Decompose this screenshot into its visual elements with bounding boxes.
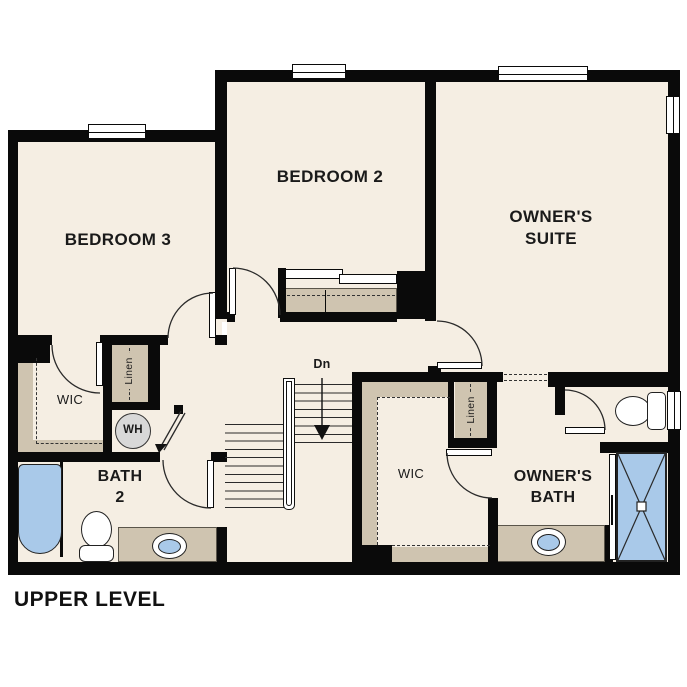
wall — [325, 290, 326, 314]
wall — [487, 375, 497, 443]
cased-opening-dash — [504, 380, 547, 381]
window — [666, 96, 680, 134]
window — [292, 64, 346, 79]
floor-plan: BEDROOM 3 BEDROOM 2 OWNER'S SUITE OWNER'… — [0, 0, 687, 687]
stairs-railing-inner — [286, 381, 292, 506]
stairs-upper-flight — [287, 384, 352, 446]
water-heater-label: WH — [103, 424, 163, 436]
bedroom2-label: BEDROOM 2 — [250, 166, 410, 188]
page-title: UPPER LEVEL — [14, 588, 165, 612]
owners-toilet-tank — [647, 392, 666, 430]
wall — [668, 70, 680, 575]
window — [667, 391, 681, 430]
wall — [548, 372, 668, 387]
bedroom2-door-leaf — [229, 268, 236, 315]
wall — [103, 335, 112, 457]
wic-left-door-leaf — [96, 342, 103, 386]
wall — [8, 562, 680, 575]
wall — [8, 452, 160, 462]
owners-bath-label: OWNER'S BATH — [473, 466, 633, 508]
window — [88, 124, 146, 139]
owners-toilet-bowl — [615, 396, 651, 426]
stairs-down-label: Dn — [292, 357, 352, 371]
wall — [148, 335, 160, 410]
linen-left-label: Linen — [123, 353, 135, 389]
dash — [377, 397, 378, 545]
wall — [448, 380, 454, 438]
wall — [280, 312, 397, 322]
window — [498, 66, 588, 81]
wall — [352, 372, 503, 382]
wall — [352, 545, 392, 570]
wall — [425, 76, 436, 321]
wall — [352, 372, 362, 547]
bath2-toilet-bowl — [81, 511, 112, 548]
bath2-toilet-tank — [79, 545, 114, 562]
owners-sink-basin — [537, 534, 560, 551]
closet-slider-left — [285, 269, 343, 279]
wic-right-label: WIC — [381, 466, 441, 481]
stairs-lower-flight — [225, 424, 288, 508]
wall — [215, 76, 227, 319]
owners-suite-label: OWNER'S SUITE — [471, 206, 631, 250]
dash — [287, 295, 395, 296]
bath2-label: BATH 2 — [40, 466, 200, 508]
bath2-sink-basin — [158, 539, 181, 554]
wic-right-shelf-west — [362, 397, 377, 545]
wall — [555, 387, 565, 415]
dash — [392, 545, 490, 546]
bedroom3-label: BEDROOM 3 — [38, 229, 198, 251]
wic-right-door-leaf — [446, 449, 492, 456]
owners-suite-door-leaf — [437, 362, 482, 369]
bath2-door-leaf — [207, 460, 214, 508]
closet-slider-right — [339, 274, 397, 284]
wall — [217, 527, 227, 572]
cased-opening-dash — [504, 374, 547, 375]
toilet-room-door-leaf — [565, 427, 605, 434]
linen-right-label: Linen — [465, 392, 477, 428]
dash — [36, 358, 37, 444]
bedroom3-door-leaf — [209, 292, 216, 338]
wall — [174, 405, 183, 414]
wic-right-shelf-south — [392, 547, 492, 563]
wall — [215, 335, 227, 345]
bedroom2-closet-shelf — [285, 288, 397, 314]
wic-right-shelf-north — [362, 382, 450, 397]
wall — [15, 345, 50, 363]
wic-left-label: WIC — [40, 392, 100, 407]
wall — [215, 70, 680, 82]
dash — [377, 397, 450, 398]
dash — [36, 443, 102, 444]
wall — [103, 402, 160, 410]
wall — [8, 335, 52, 345]
